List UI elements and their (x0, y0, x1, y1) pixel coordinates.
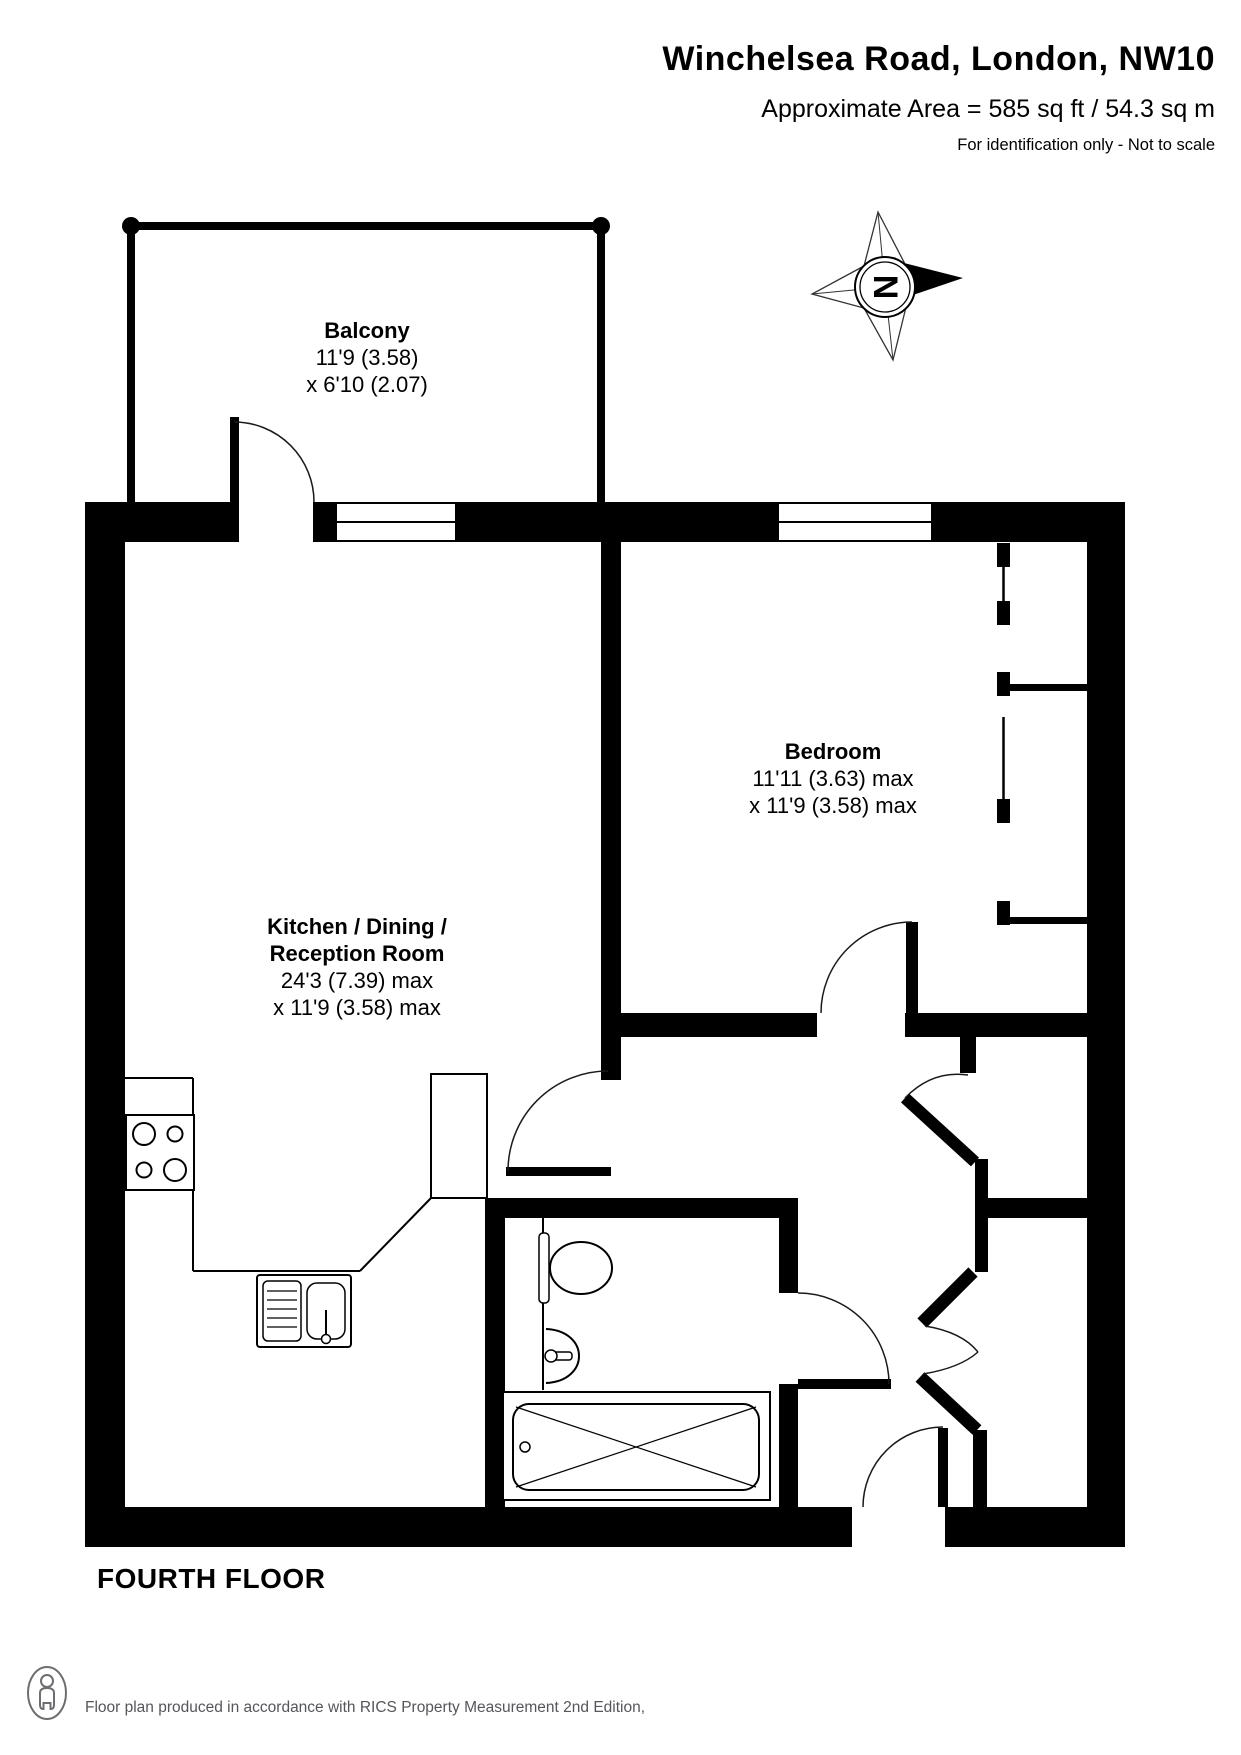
room-name: Balcony (207, 317, 527, 344)
person-icon (24, 1663, 70, 1723)
header: Winchelsea Road, London, NW10 Approximat… (662, 40, 1215, 155)
footer-line1: Floor plan produced in accordance with R… (85, 1699, 788, 1718)
compass-north-letter: N (866, 275, 904, 300)
hall-door-icon (506, 1071, 611, 1176)
hob-icon (126, 1115, 194, 1190)
room-dim: 24'3 (7.39) max (197, 967, 517, 994)
room-dim: 11'11 (3.63) max (673, 765, 993, 792)
basin-icon (545, 1329, 579, 1383)
room-dim: 11'9 (3.58) (207, 344, 527, 371)
bathtub-icon (503, 1392, 770, 1500)
scale-disclaimer: For identification only - Not to scale (662, 136, 1215, 155)
bathroom-fixtures (503, 1218, 770, 1500)
balcony-door-icon (230, 417, 314, 502)
page-title: Winchelsea Road, London, NW10 (662, 40, 1215, 79)
bedroom-door-icon (821, 922, 918, 1013)
toilet-icon (539, 1233, 612, 1303)
bathroom-door-icon (798, 1293, 891, 1389)
room-name: Bedroom (673, 738, 993, 765)
room-dim: x 11'9 (3.58) max (673, 792, 993, 819)
room-name: Reception Room (197, 940, 517, 967)
kitchen-fixtures (125, 1074, 487, 1347)
wardrobe-recesses (997, 543, 1087, 925)
room-dim: x 6'10 (2.07) (207, 371, 527, 398)
sink-icon (257, 1275, 351, 1347)
compass-north-icon: N (812, 212, 963, 360)
kitchen-window-icon (336, 503, 456, 541)
balcony-label: Balcony 11'9 (3.58) x 6'10 (2.07) (207, 317, 527, 398)
bedroom-window-icon (778, 503, 932, 541)
floor-plan-drawing: N (0, 0, 1241, 1755)
closet-door-icon (905, 1074, 975, 1162)
approximate-area: Approximate Area = 585 sq ft / 54.3 sq m (662, 95, 1215, 124)
footer-text: Floor plan produced in accordance with R… (85, 1662, 788, 1755)
bedroom-label: Bedroom 11'11 (3.63) max x 11'9 (3.58) m… (673, 738, 993, 819)
kitchen-label: Kitchen / Dining / Reception Room 24'3 (… (197, 913, 517, 1021)
floor-plan-page: N Winchelsea Road, London, NW10 Approxim… (0, 0, 1241, 1755)
room-name: Kitchen / Dining / (197, 913, 517, 940)
room-dim: x 11'9 (3.58) max (197, 994, 517, 1021)
floor-title: FOURTH FLOOR (97, 1563, 325, 1595)
